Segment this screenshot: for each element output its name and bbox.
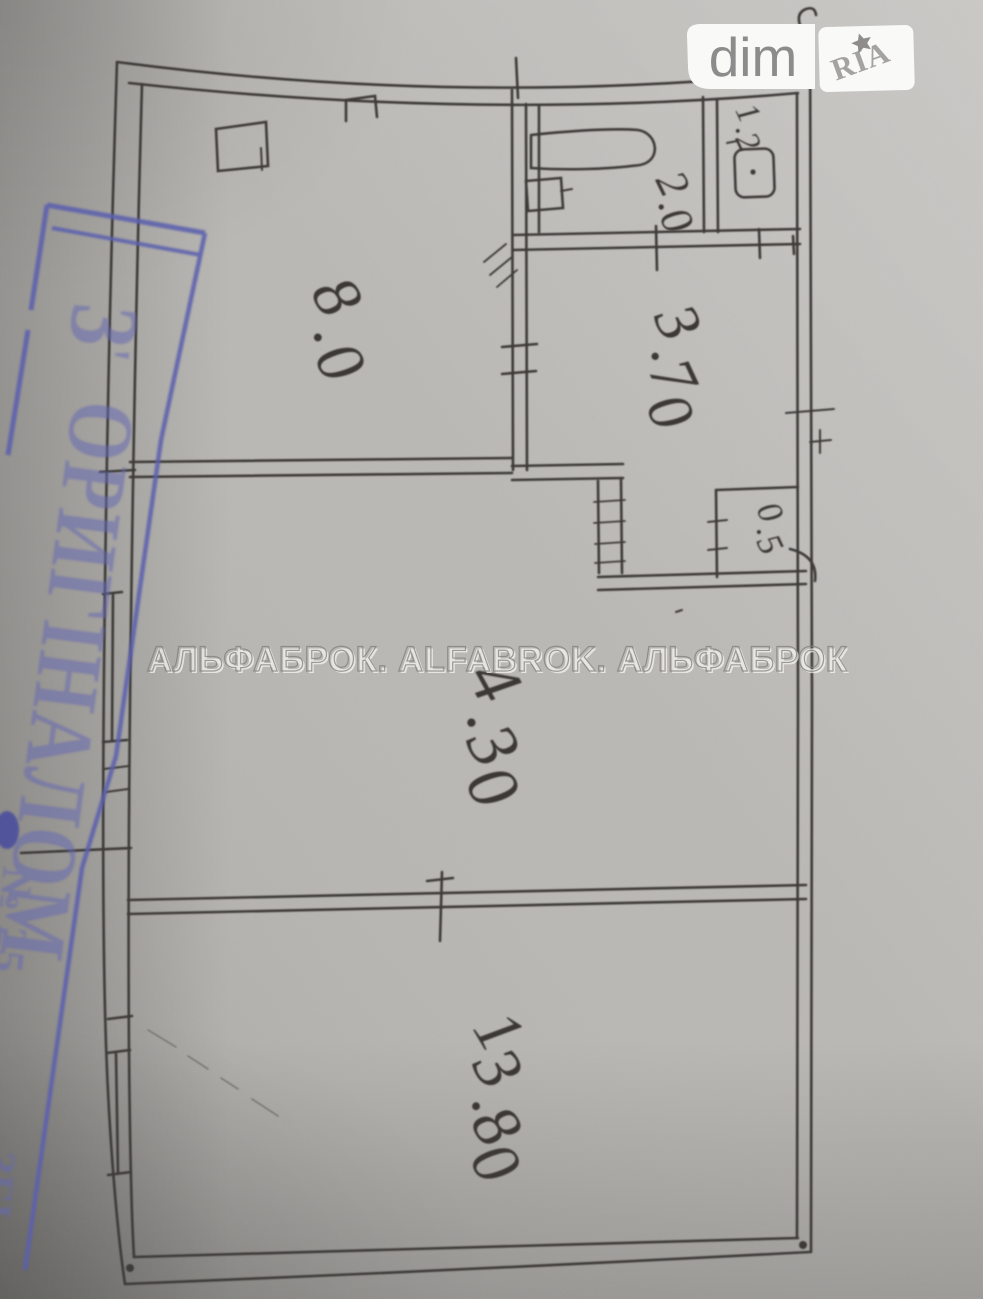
svg-text:dim: dim xyxy=(709,26,798,88)
svg-text:АЛЬФАБРОК. ALFABROK. АЛЬФАБРОК: АЛЬФАБРОК. ALFABROK. АЛЬФАБРОК xyxy=(147,640,848,679)
svg-text:ЗГІ: ЗГІ xyxy=(0,1149,25,1221)
